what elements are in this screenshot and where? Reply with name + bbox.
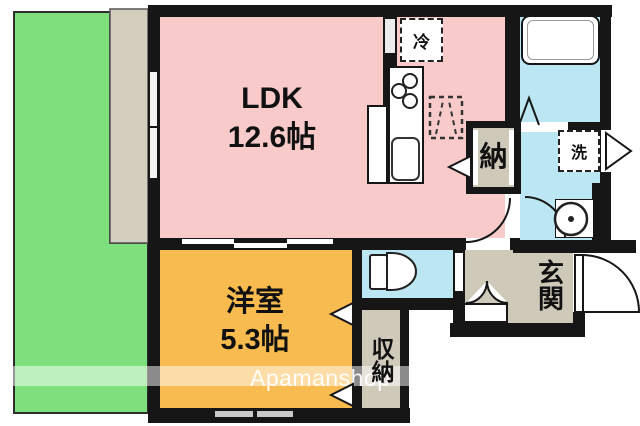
ldk-west-window-1 [150,72,157,126]
refrigerator-space: 冷 [400,18,443,62]
shoe-cabinet [463,303,508,323]
hall-south-wall [450,323,585,337]
entrance-label: 玄関 [534,248,566,322]
toilet-room [362,247,453,298]
ldk-western-slide-door-2 [234,243,287,248]
floor-plan: 冷 洗 Apamanshop LDK 12.6帖 洋室 5.3帖 納 玄関 収納 [0,0,640,426]
washbasin-counter [555,199,594,238]
ldk-name: LDK [241,79,303,118]
washer-space: 洗 [558,130,600,172]
bathtub-inner [527,20,594,60]
front-door-leaf [575,255,583,312]
western-south-window-1 [215,411,253,417]
western-south-window-2 [257,411,293,417]
left-wall [148,5,160,422]
ldk-western-slide-door-1 [182,239,234,244]
western-room-label: 洋室 5.3帖 [160,283,350,361]
toilet-south-wall [352,298,465,310]
washer-label: 洗 [571,139,587,163]
ldk-hall-door-gap [466,238,510,250]
toilet-door-gap [455,253,463,291]
closet-label: 収納 [363,316,399,404]
ldk-west-window-2 [150,128,157,178]
nando-label: 納 [466,128,521,187]
ldk-western-slide-door-3 [287,239,333,244]
front-door-arc [582,255,639,312]
western-room-size: 5.3帖 [220,322,289,360]
hall-lintel-wall [513,240,636,253]
washroom-door-gap [505,193,520,238]
ldk-label: LDK 12.6帖 [182,76,362,160]
closet-east-wall [400,310,409,408]
kitchen-stub-window [385,19,395,53]
washroom-ext-door-gap [601,130,611,172]
kitchen-counter [367,105,388,184]
hall-east-stub-wall [573,312,585,337]
western-room-name: 洋室 [226,284,284,322]
garden-area [14,12,148,413]
veranda-area [110,9,148,243]
refrigerator-label: 冷 [413,28,430,53]
ldk-size: 12.6帖 [228,118,316,157]
kitchen-sink [391,137,420,181]
